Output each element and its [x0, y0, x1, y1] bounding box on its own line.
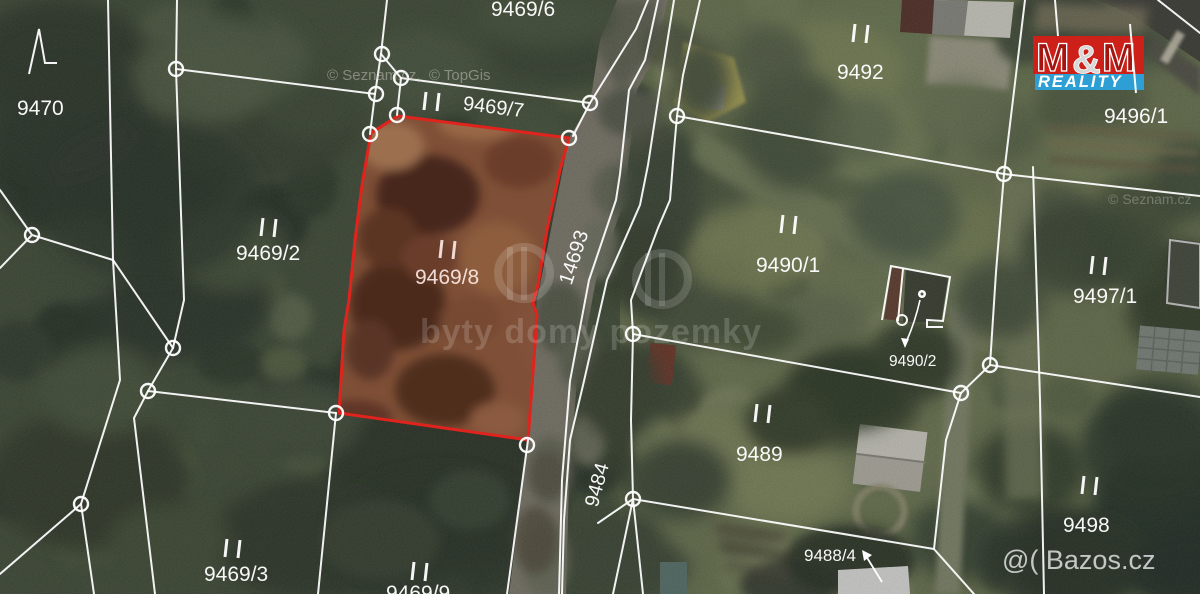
svg-text:© Seznam.cz, © TopGis: © Seznam.cz, © TopGis — [327, 67, 491, 84]
svg-text:9469/2: 9469/2 — [236, 242, 300, 265]
svg-text:9488/4: 9488/4 — [804, 546, 856, 565]
svg-text:REALITY: REALITY — [1038, 73, 1123, 91]
svg-text:9496/1: 9496/1 — [1104, 105, 1168, 128]
svg-text:© Seznam.cz: © Seznam.cz — [1108, 191, 1191, 207]
svg-text:9469/3: 9469/3 — [204, 563, 268, 586]
svg-text:9498: 9498 — [1063, 514, 1110, 537]
svg-text:9497/1: 9497/1 — [1073, 285, 1137, 308]
svg-text:9469/8: 9469/8 — [415, 266, 479, 289]
svg-text:9490/1: 9490/1 — [756, 254, 820, 277]
svg-text:9470: 9470 — [17, 97, 64, 120]
svg-text:9492: 9492 — [837, 61, 884, 84]
svg-text:9489: 9489 — [736, 443, 783, 466]
svg-text:@( Bazos.cz: @( Bazos.cz — [1002, 545, 1155, 575]
svg-text:9490/2: 9490/2 — [889, 353, 936, 370]
svg-text:byty domy pozemky: byty domy pozemky — [420, 313, 762, 351]
svg-text:9469/9: 9469/9 — [386, 582, 450, 594]
svg-text:9469/6: 9469/6 — [491, 0, 555, 21]
